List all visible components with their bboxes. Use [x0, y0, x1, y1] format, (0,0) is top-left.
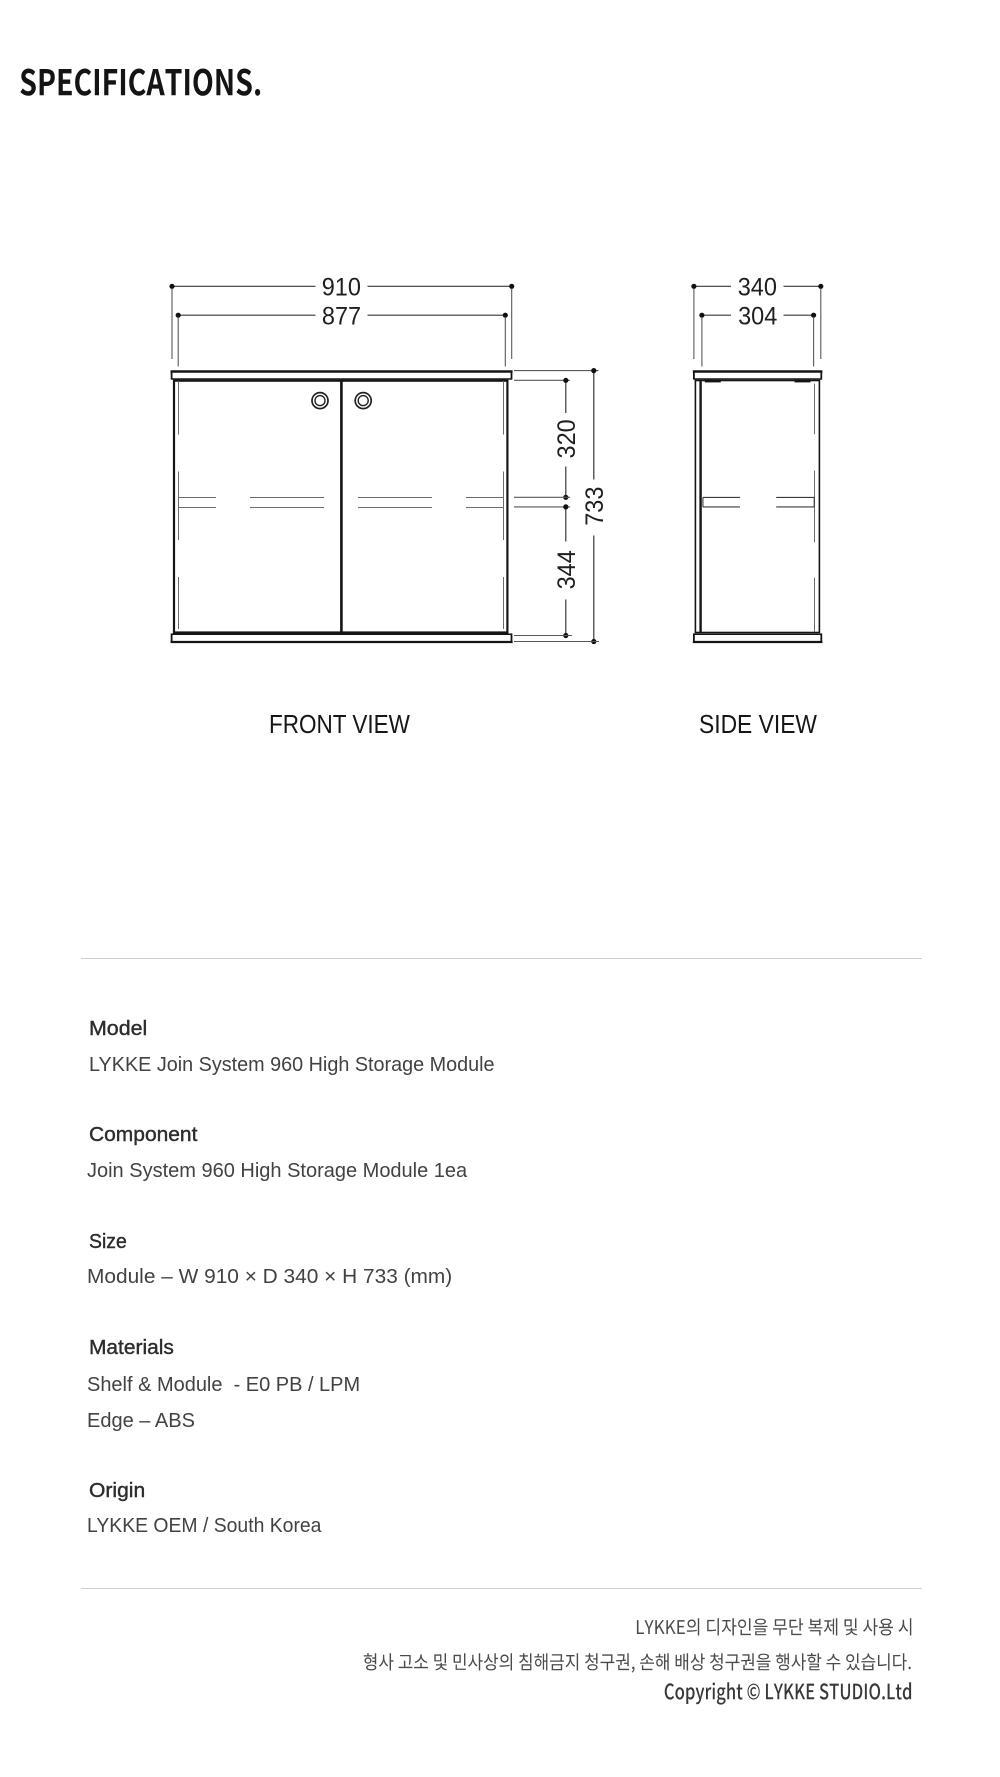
svg-text:340: 340 [738, 274, 777, 302]
svg-text:733: 733 [581, 487, 609, 526]
svg-text:320: 320 [553, 419, 581, 458]
svg-text:344: 344 [553, 550, 581, 589]
svg-text:877: 877 [322, 303, 361, 331]
svg-text:304: 304 [738, 303, 777, 331]
svg-text:910: 910 [322, 274, 361, 302]
